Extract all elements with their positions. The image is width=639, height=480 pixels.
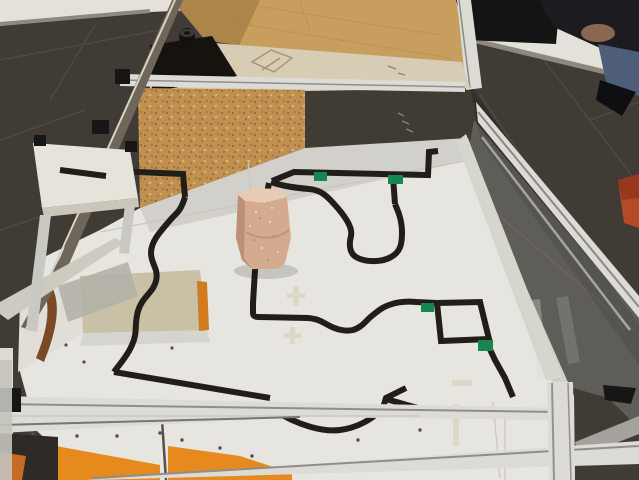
leg-cap-left xyxy=(34,135,46,146)
person-hand xyxy=(581,24,615,42)
photo-robot-arena xyxy=(0,0,639,480)
green-marker-4 xyxy=(478,340,493,351)
corner-clamp-mid xyxy=(92,120,109,134)
upper-ramp-orange-edge xyxy=(197,281,209,331)
corner-clamp-left xyxy=(115,69,130,84)
tape-roll-hole xyxy=(184,31,190,35)
green-marker-2 xyxy=(388,175,403,184)
leg-cap-right xyxy=(125,141,137,152)
scene-canvas xyxy=(0,0,639,480)
left-post-sliver xyxy=(0,360,12,480)
green-marker-1 xyxy=(314,172,327,181)
green-marker-3 xyxy=(421,303,434,312)
